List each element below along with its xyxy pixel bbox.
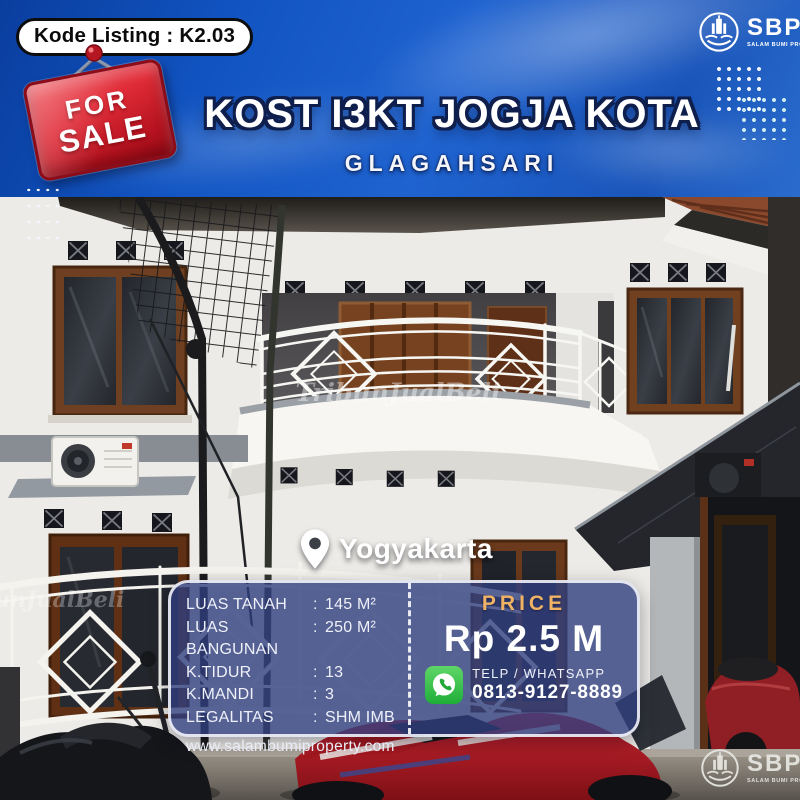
brand-logo-bottom: SBP SALAM BUMI PROPERTY <box>700 748 800 788</box>
location-label: Yogyakarta <box>339 533 493 565</box>
sale-text-for: FOR <box>63 84 131 124</box>
contact-number: 0813-9127-8889 <box>472 682 623 704</box>
price-column: PRICE Rp 2.5 M TELP / WHATSAPP 08 <box>408 583 637 734</box>
spec-value: 3 <box>325 684 402 707</box>
photo-watermark: TribunJualBeli <box>295 378 500 407</box>
price-value: Rp 2.5 M <box>444 619 604 659</box>
spec-separator: : <box>313 684 325 707</box>
spec-value: SHM IMB <box>325 707 402 730</box>
brand-tagline: SALAM BUMI PROPERTY <box>747 42 800 48</box>
page-subtitle: GLAGAHSARI <box>112 150 792 177</box>
location-row: Yogyakarta <box>300 528 493 570</box>
spec-row: LUAS BANGUNAN : 250 M² <box>186 617 402 662</box>
spec-separator: : <box>313 707 325 730</box>
specs-column: LUAS TANAH : 145 M² LUAS BANGUNAN : 250 … <box>171 583 408 734</box>
spec-separator: : <box>313 662 325 685</box>
spec-label: K.TIDUR <box>186 662 313 685</box>
for-sale-sign: FOR SALE <box>24 40 180 176</box>
contact-label: TELP / WHATSAPP <box>472 666 623 681</box>
info-panel: LUAS TANAH : 145 M² LUAS BANGUNAN : 250 … <box>168 580 640 737</box>
spec-label: LUAS BANGUNAN <box>186 617 313 662</box>
spec-row: LEGALITAS : SHM IMB <box>186 707 402 730</box>
spec-separator: : <box>313 617 325 662</box>
dot-pattern-left <box>22 180 62 240</box>
spec-label: LUAS TANAH <box>186 594 313 617</box>
sale-text-sale: SALE <box>56 109 149 158</box>
spec-label: K.MANDI <box>186 684 313 707</box>
sbp-logo-icon <box>698 11 740 53</box>
spec-label: LEGALITAS <box>186 707 313 730</box>
property-listing-poster: TribunJualBeli TribunJualBeli Kode Listi… <box>0 0 800 800</box>
header-block: KOST I3KT JOGJA KOTA GLAGAHSARI <box>112 92 792 177</box>
spec-value: 250 M² <box>325 617 402 662</box>
brand-name: SBP <box>747 752 800 776</box>
brand-tagline: SALAM BUMI PROPERTY <box>747 778 800 784</box>
sbp-logo-icon <box>700 748 740 788</box>
spec-value: 145 M² <box>325 594 402 617</box>
spec-row: LUAS TANAH : 145 M² <box>186 594 402 617</box>
spec-value: 13 <box>325 662 402 685</box>
website-url: www.salambumiproperty.com <box>186 738 402 756</box>
price-label: PRICE <box>482 592 566 616</box>
spec-row: K.MANDI : 3 <box>186 684 402 707</box>
contact-row: TELP / WHATSAPP 0813-9127-8889 <box>425 666 623 704</box>
brand-name: SBP <box>747 16 800 40</box>
photo-watermark-partial: TribunJualBeli <box>0 587 124 613</box>
brand-logo-top: SBP SALAM BUMI PROPERTY <box>698 11 800 53</box>
whatsapp-icon <box>425 666 463 704</box>
spec-separator: : <box>313 594 325 617</box>
map-pin-icon <box>300 528 330 570</box>
page-title: KOST I3KT JOGJA KOTA <box>112 92 792 137</box>
spec-row: K.TIDUR : 13 <box>186 662 402 685</box>
